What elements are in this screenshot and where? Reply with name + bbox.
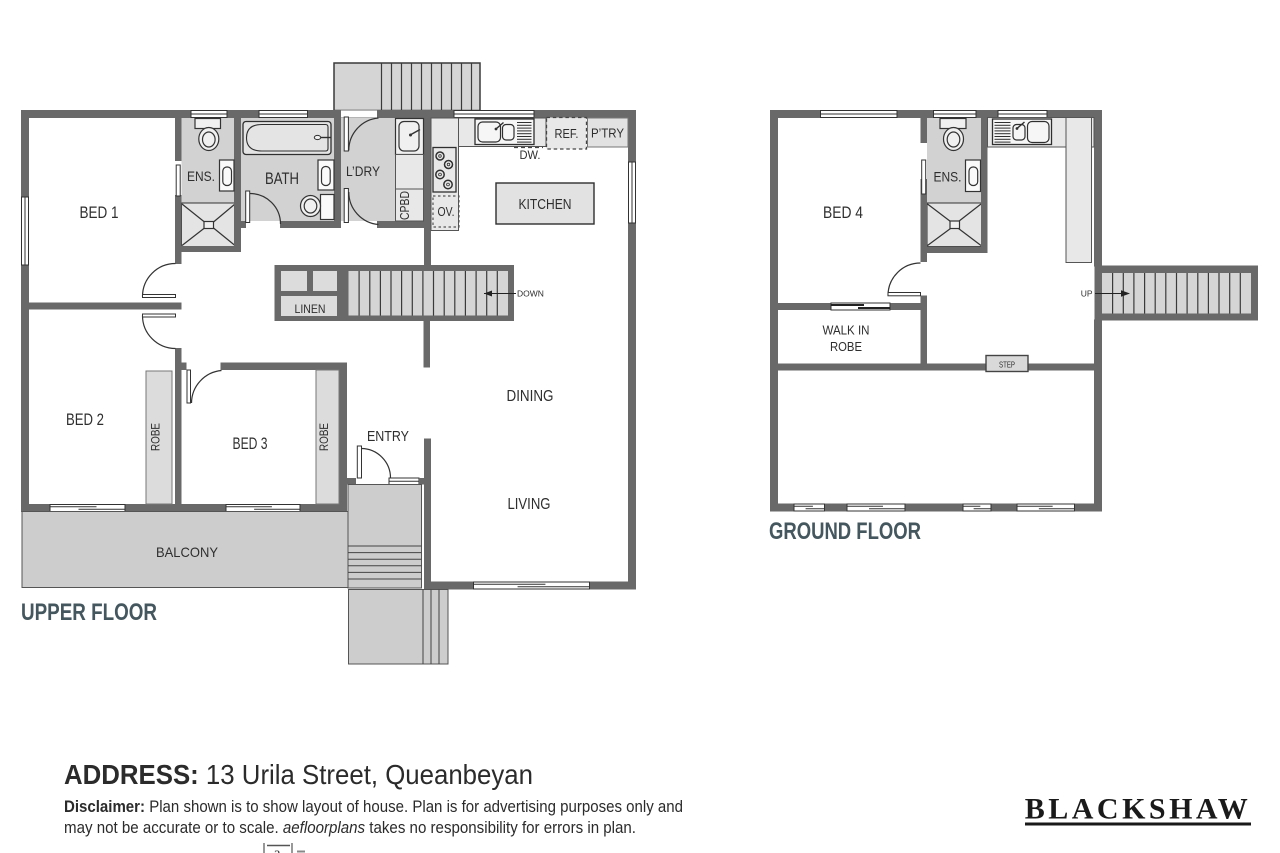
svg-text:a: a [273,845,280,853]
svg-text:REF.: REF. [555,127,579,141]
svg-text:BED 4: BED 4 [823,203,863,222]
svg-text:BLACKSHAW: BLACKSHAW [1025,793,1252,826]
svg-text:GROUND FLOOR: GROUND FLOOR [769,518,921,545]
svg-text:BED 1: BED 1 [80,203,119,222]
svg-text:BED 2: BED 2 [66,410,104,429]
svg-text:DINING: DINING [507,388,554,405]
svg-text:OV.: OV. [438,205,455,219]
svg-text:BED 3: BED 3 [233,434,268,453]
svg-text:may not be accurate or to scal: may not be accurate or to scale. aefloor… [64,819,636,837]
svg-text:UP: UP [1081,289,1093,299]
svg-text:ROBE: ROBE [317,423,331,451]
svg-text:STEP: STEP [999,360,1015,370]
svg-text:BALCONY: BALCONY [156,544,219,560]
svg-text:CPBD: CPBD [398,191,412,220]
svg-text:LINEN: LINEN [295,302,326,316]
svg-text:ADDRESS: 13 Urila Street, Quea: ADDRESS: 13 Urila Street, Queanbeyan [64,759,533,790]
svg-text:KITCHEN: KITCHEN [519,197,572,213]
svg-text:P’TRY: P’TRY [591,127,625,141]
svg-text:Disclaimer: Plan shown is to s: Disclaimer: Plan shown is to show layout… [64,798,683,816]
svg-text:ROBE: ROBE [149,423,163,451]
svg-text:ENS.: ENS. [934,169,962,185]
svg-text:DW.: DW. [520,150,541,162]
svg-text:ENS.: ENS. [187,168,215,184]
svg-text:UPPER FLOOR: UPPER FLOOR [21,599,157,626]
svg-text:ENTRY: ENTRY [367,428,409,445]
svg-text:WALK IN: WALK IN [823,323,870,338]
svg-text:ROBE: ROBE [830,339,862,354]
svg-text:LIVING: LIVING [508,496,551,513]
svg-text:BATH: BATH [265,169,299,188]
svg-text:DOWN: DOWN [517,289,544,299]
svg-text:L’DRY: L’DRY [346,163,381,179]
